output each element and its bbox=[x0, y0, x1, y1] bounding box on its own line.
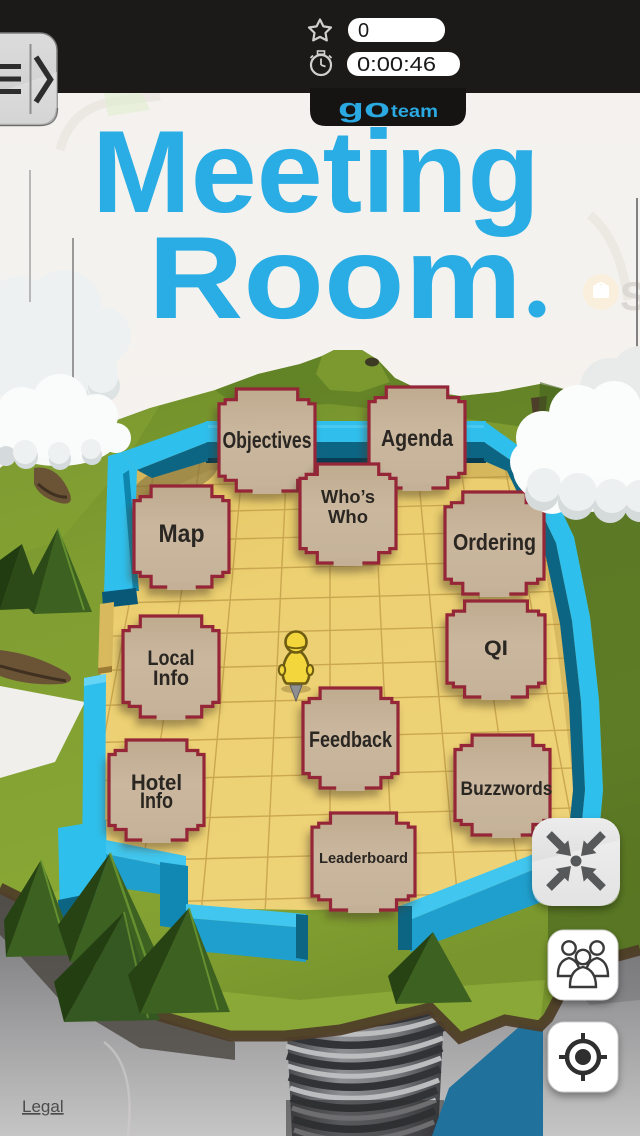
svg-text:Agenda: Agenda bbox=[381, 425, 453, 451]
svg-text:Info: Info bbox=[140, 788, 173, 813]
svg-text:Leaderboard: Leaderboard bbox=[319, 850, 408, 867]
svg-text:Objectives: Objectives bbox=[223, 427, 312, 453]
svg-text:Who: Who bbox=[328, 507, 368, 527]
svg-text:Info: Info bbox=[153, 667, 189, 690]
svg-text:Map: Map bbox=[159, 520, 205, 548]
svg-text:Ordering: Ordering bbox=[453, 529, 536, 555]
svg-text:Feedback: Feedback bbox=[309, 727, 393, 752]
svg-text:Legal: Legal bbox=[22, 1097, 64, 1116]
svg-text:Buzzwords: Buzzwords bbox=[461, 779, 553, 800]
svg-text:0:00:46: 0:00:46 bbox=[357, 54, 436, 76]
svg-text:Who’s: Who’s bbox=[321, 487, 375, 507]
svg-text:0: 0 bbox=[358, 20, 369, 42]
svg-text:QI: QI bbox=[484, 637, 508, 660]
svg-text:Room: Room bbox=[148, 212, 522, 343]
